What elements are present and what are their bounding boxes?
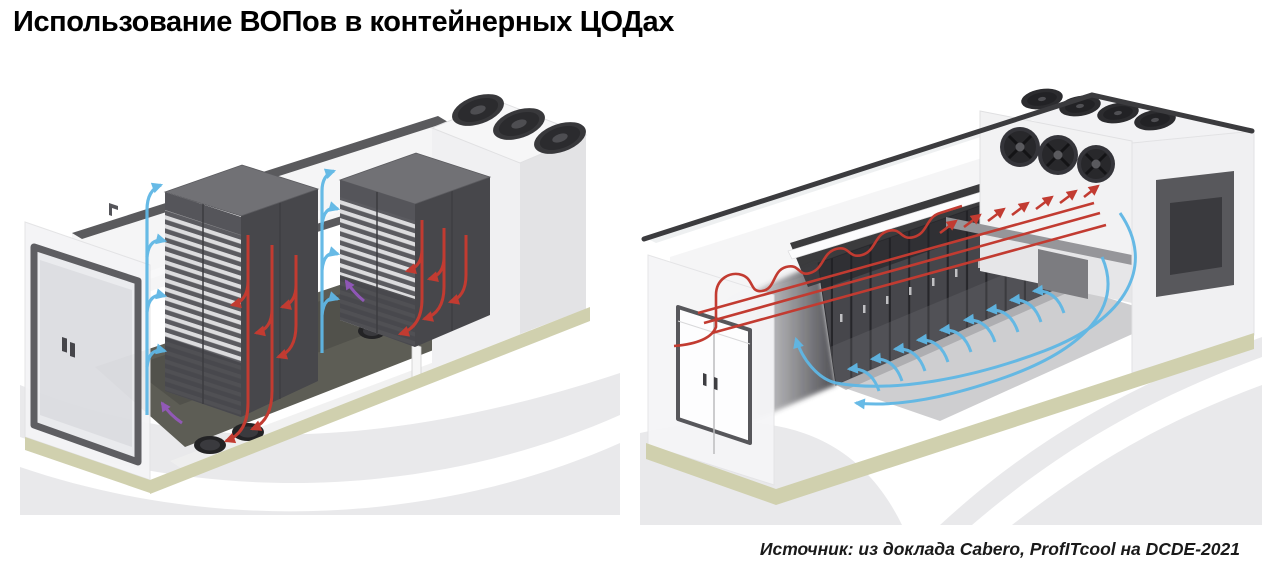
page-title: Использование ВОПов в контейнерных ЦОДах xyxy=(13,6,674,39)
right-container-svg xyxy=(640,85,1262,525)
left-container-illustration xyxy=(20,85,620,515)
left-container-svg xyxy=(20,85,620,515)
container-end-door xyxy=(25,222,150,480)
slide: { "slide": { "title": "Использование ВОП… xyxy=(0,0,1262,568)
right-container-illustration xyxy=(640,85,1262,525)
source-caption: Источник: из доклада Cabero, ProfITcool … xyxy=(760,539,1240,560)
